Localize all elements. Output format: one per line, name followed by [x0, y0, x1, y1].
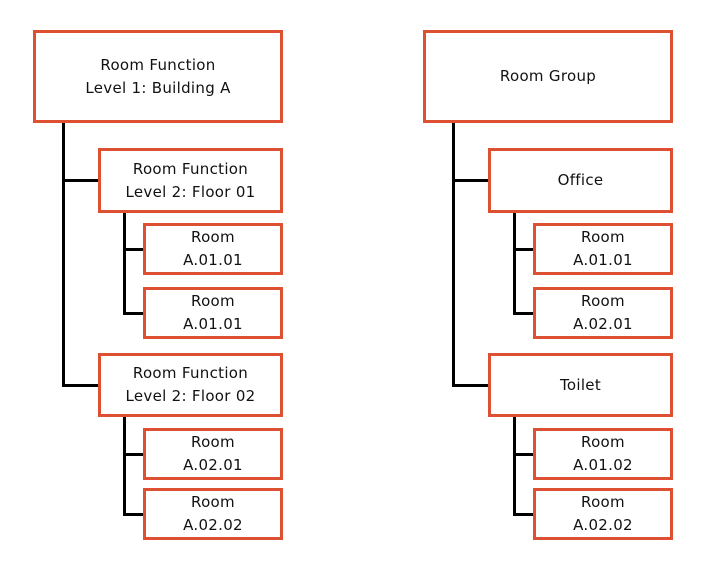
- connector-stub: [452, 179, 488, 182]
- connector-stub: [513, 312, 533, 315]
- connector-vertical: [123, 417, 126, 516]
- node-room-a-01-01-group: Room A.01.01: [533, 223, 673, 275]
- node-room-function-floor-01: Room Function Level 2: Floor 01: [98, 148, 283, 213]
- node-label-line: A.02.01: [183, 454, 243, 477]
- node-label-line: A.01.01: [573, 249, 633, 272]
- node-label-line: A.01.01: [183, 249, 243, 272]
- node-room-group: Room Group: [423, 30, 673, 123]
- connector-stub: [123, 248, 143, 251]
- node-label-line: Room Group: [500, 65, 596, 88]
- node-label-line: Toilet: [560, 374, 601, 397]
- connector-stub: [513, 248, 533, 251]
- node-room-a-02-02: Room A.02.02: [143, 488, 283, 540]
- connector-vertical: [452, 123, 455, 386]
- connector-stub: [123, 312, 143, 315]
- node-label-line: A.01.02: [573, 454, 633, 477]
- node-label-line: Room Function: [133, 362, 248, 385]
- node-room-a-02-02-group: Room A.02.02: [533, 488, 673, 540]
- node-label-line: A.02.01: [573, 313, 633, 336]
- connector-vertical: [123, 213, 126, 315]
- connector-stub: [123, 513, 143, 516]
- node-label-line: Level 2: Floor 02: [126, 385, 256, 408]
- connector-vertical: [513, 417, 516, 516]
- node-label-line: Room Function: [100, 54, 215, 77]
- node-label-line: Room: [581, 431, 625, 454]
- connector-vertical: [62, 123, 65, 386]
- node-label-line: Room: [191, 491, 235, 514]
- node-label-line: Room: [581, 290, 625, 313]
- node-label-line: Level 2: Floor 01: [126, 181, 256, 204]
- connector-stub: [452, 384, 488, 387]
- node-room-function-floor-02: Room Function Level 2: Floor 02: [98, 353, 283, 417]
- node-label-line: Room: [191, 431, 235, 454]
- connector-stub: [513, 513, 533, 516]
- node-label-line: Room Function: [133, 158, 248, 181]
- node-label-line: Room: [191, 290, 235, 313]
- connector-vertical: [513, 213, 516, 315]
- node-label-line: Office: [558, 169, 604, 192]
- node-label-line: A.01.01: [183, 313, 243, 336]
- node-room-function-level1: Room Function Level 1: Building A: [33, 30, 283, 123]
- node-toilet: Toilet: [488, 353, 673, 417]
- connector-stub: [62, 179, 98, 182]
- node-room-a-01-01-duplicate: Room A.01.01: [143, 287, 283, 339]
- connector-stub: [123, 453, 143, 456]
- diagram-canvas: Room Function Level 1: Building A Room F…: [0, 0, 728, 565]
- node-room-a-01-01: Room A.01.01: [143, 223, 283, 275]
- node-room-a-02-01: Room A.02.01: [143, 428, 283, 480]
- node-label-line: Room: [581, 491, 625, 514]
- node-office: Office: [488, 148, 673, 213]
- node-label-line: Room: [191, 226, 235, 249]
- node-room-a-02-01-group: Room A.02.01: [533, 287, 673, 339]
- node-label-line: A.02.02: [183, 514, 243, 537]
- node-label-line: Room: [581, 226, 625, 249]
- node-room-a-01-02-group: Room A.01.02: [533, 428, 673, 480]
- connector-stub: [513, 453, 533, 456]
- connector-stub: [62, 384, 98, 387]
- node-label-line: A.02.02: [573, 514, 633, 537]
- node-label-line: Level 1: Building A: [85, 77, 230, 100]
